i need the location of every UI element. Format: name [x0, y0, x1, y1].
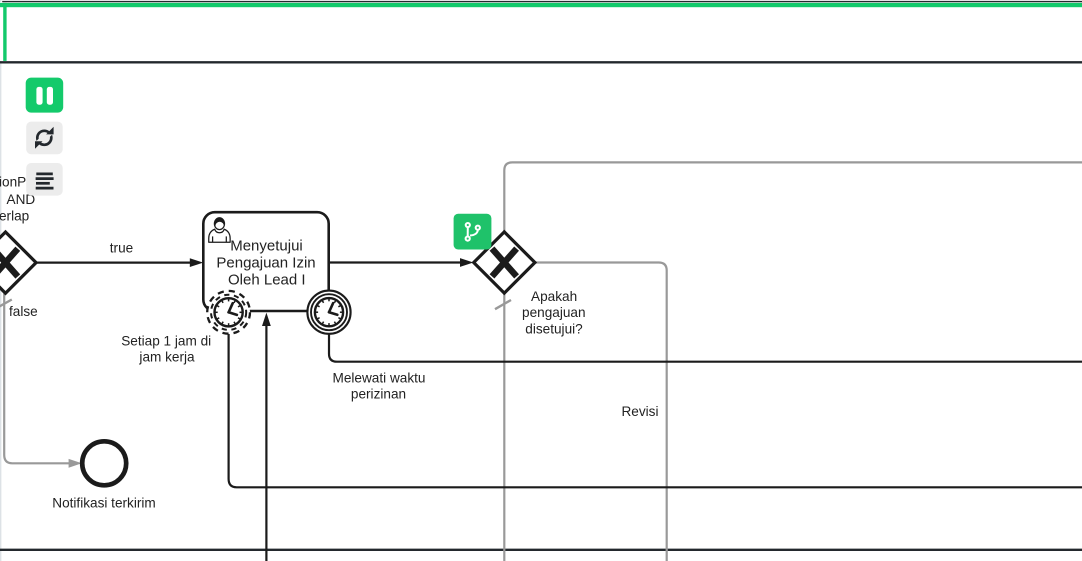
- svg-text:Notifikasi terkirim: Notifikasi terkirim: [52, 495, 155, 510]
- svg-text:jam kerja: jam kerja: [138, 349, 195, 364]
- svg-text:erlap: erlap: [0, 208, 29, 223]
- svg-text:Menyetujui: Menyetujui: [230, 238, 303, 255]
- svg-text:perizinan: perizinan: [351, 386, 406, 401]
- svg-text:ionP: ionP: [0, 174, 26, 189]
- svg-text:Revisi: Revisi: [621, 404, 658, 419]
- svg-text:pengajuan: pengajuan: [522, 305, 586, 320]
- svg-text:true: true: [110, 241, 133, 256]
- svg-text:Oleh Lead I: Oleh Lead I: [228, 272, 306, 289]
- svg-text:Pengajuan Izin: Pengajuan Izin: [216, 255, 315, 272]
- svg-text:Setiap 1 jam di: Setiap 1 jam di: [121, 334, 211, 349]
- svg-text:Apakah: Apakah: [531, 289, 577, 304]
- svg-text:false: false: [9, 304, 38, 319]
- svg-text:disetujui?: disetujui?: [525, 322, 583, 337]
- svg-text:Melewati waktu: Melewati waktu: [333, 371, 426, 386]
